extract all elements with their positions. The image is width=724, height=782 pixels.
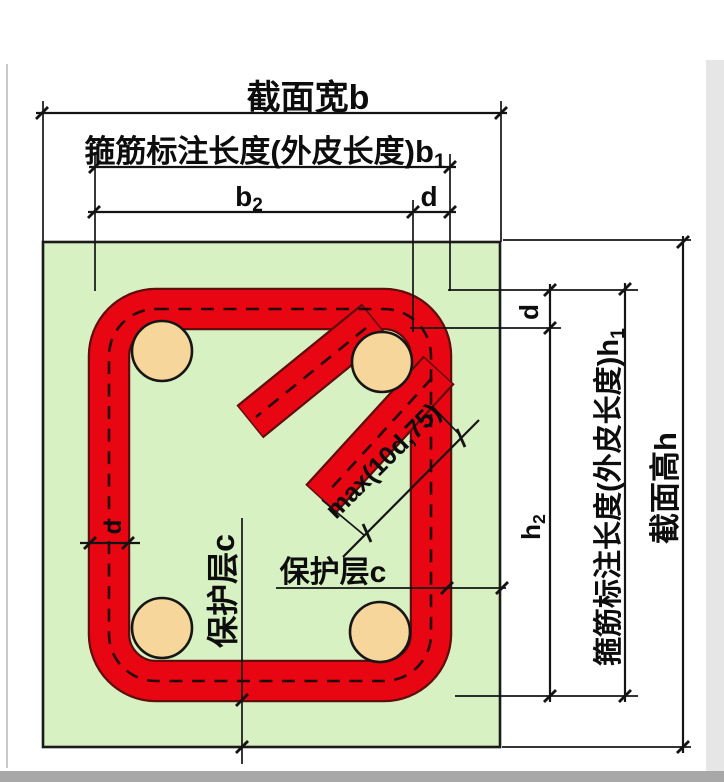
stirrup-dimension-diagram: 截面宽b 箍筋标注长度(外皮长度)b1 b2 d 截面高h 箍筋标注长度(外皮长… xyxy=(0,0,724,782)
label-section-width-b: 截面宽b xyxy=(247,78,370,117)
label-cover-horizontal: 保护层c xyxy=(280,556,387,589)
label-cover-vertical: 保护层c xyxy=(205,534,241,648)
label-d-top: d xyxy=(420,181,437,212)
page-bottom-strip xyxy=(0,771,724,782)
label-stirrup-length-b1: 箍筋标注长度(外皮长度)b1 xyxy=(84,134,446,173)
label-section-height-h: 截面高h xyxy=(648,432,683,544)
label-h2: h2 xyxy=(516,514,549,540)
page-right-shade xyxy=(706,60,724,771)
rebar-bottom-left xyxy=(132,598,192,658)
label-b2: b2 xyxy=(235,181,263,216)
rebar-bottom-right xyxy=(350,602,410,662)
label-d-left: d xyxy=(100,520,127,535)
label-d-right: d xyxy=(514,304,544,320)
label-stirrup-length-h1: 箍筋标注长度(外皮长度)h1 xyxy=(591,328,629,666)
diagram-page: 截面宽b 箍筋标注长度(外皮长度)b1 b2 d 截面高h 箍筋标注长度(外皮长… xyxy=(0,0,724,782)
rebar-top-right xyxy=(352,332,412,392)
rebar-top-left xyxy=(132,321,192,381)
